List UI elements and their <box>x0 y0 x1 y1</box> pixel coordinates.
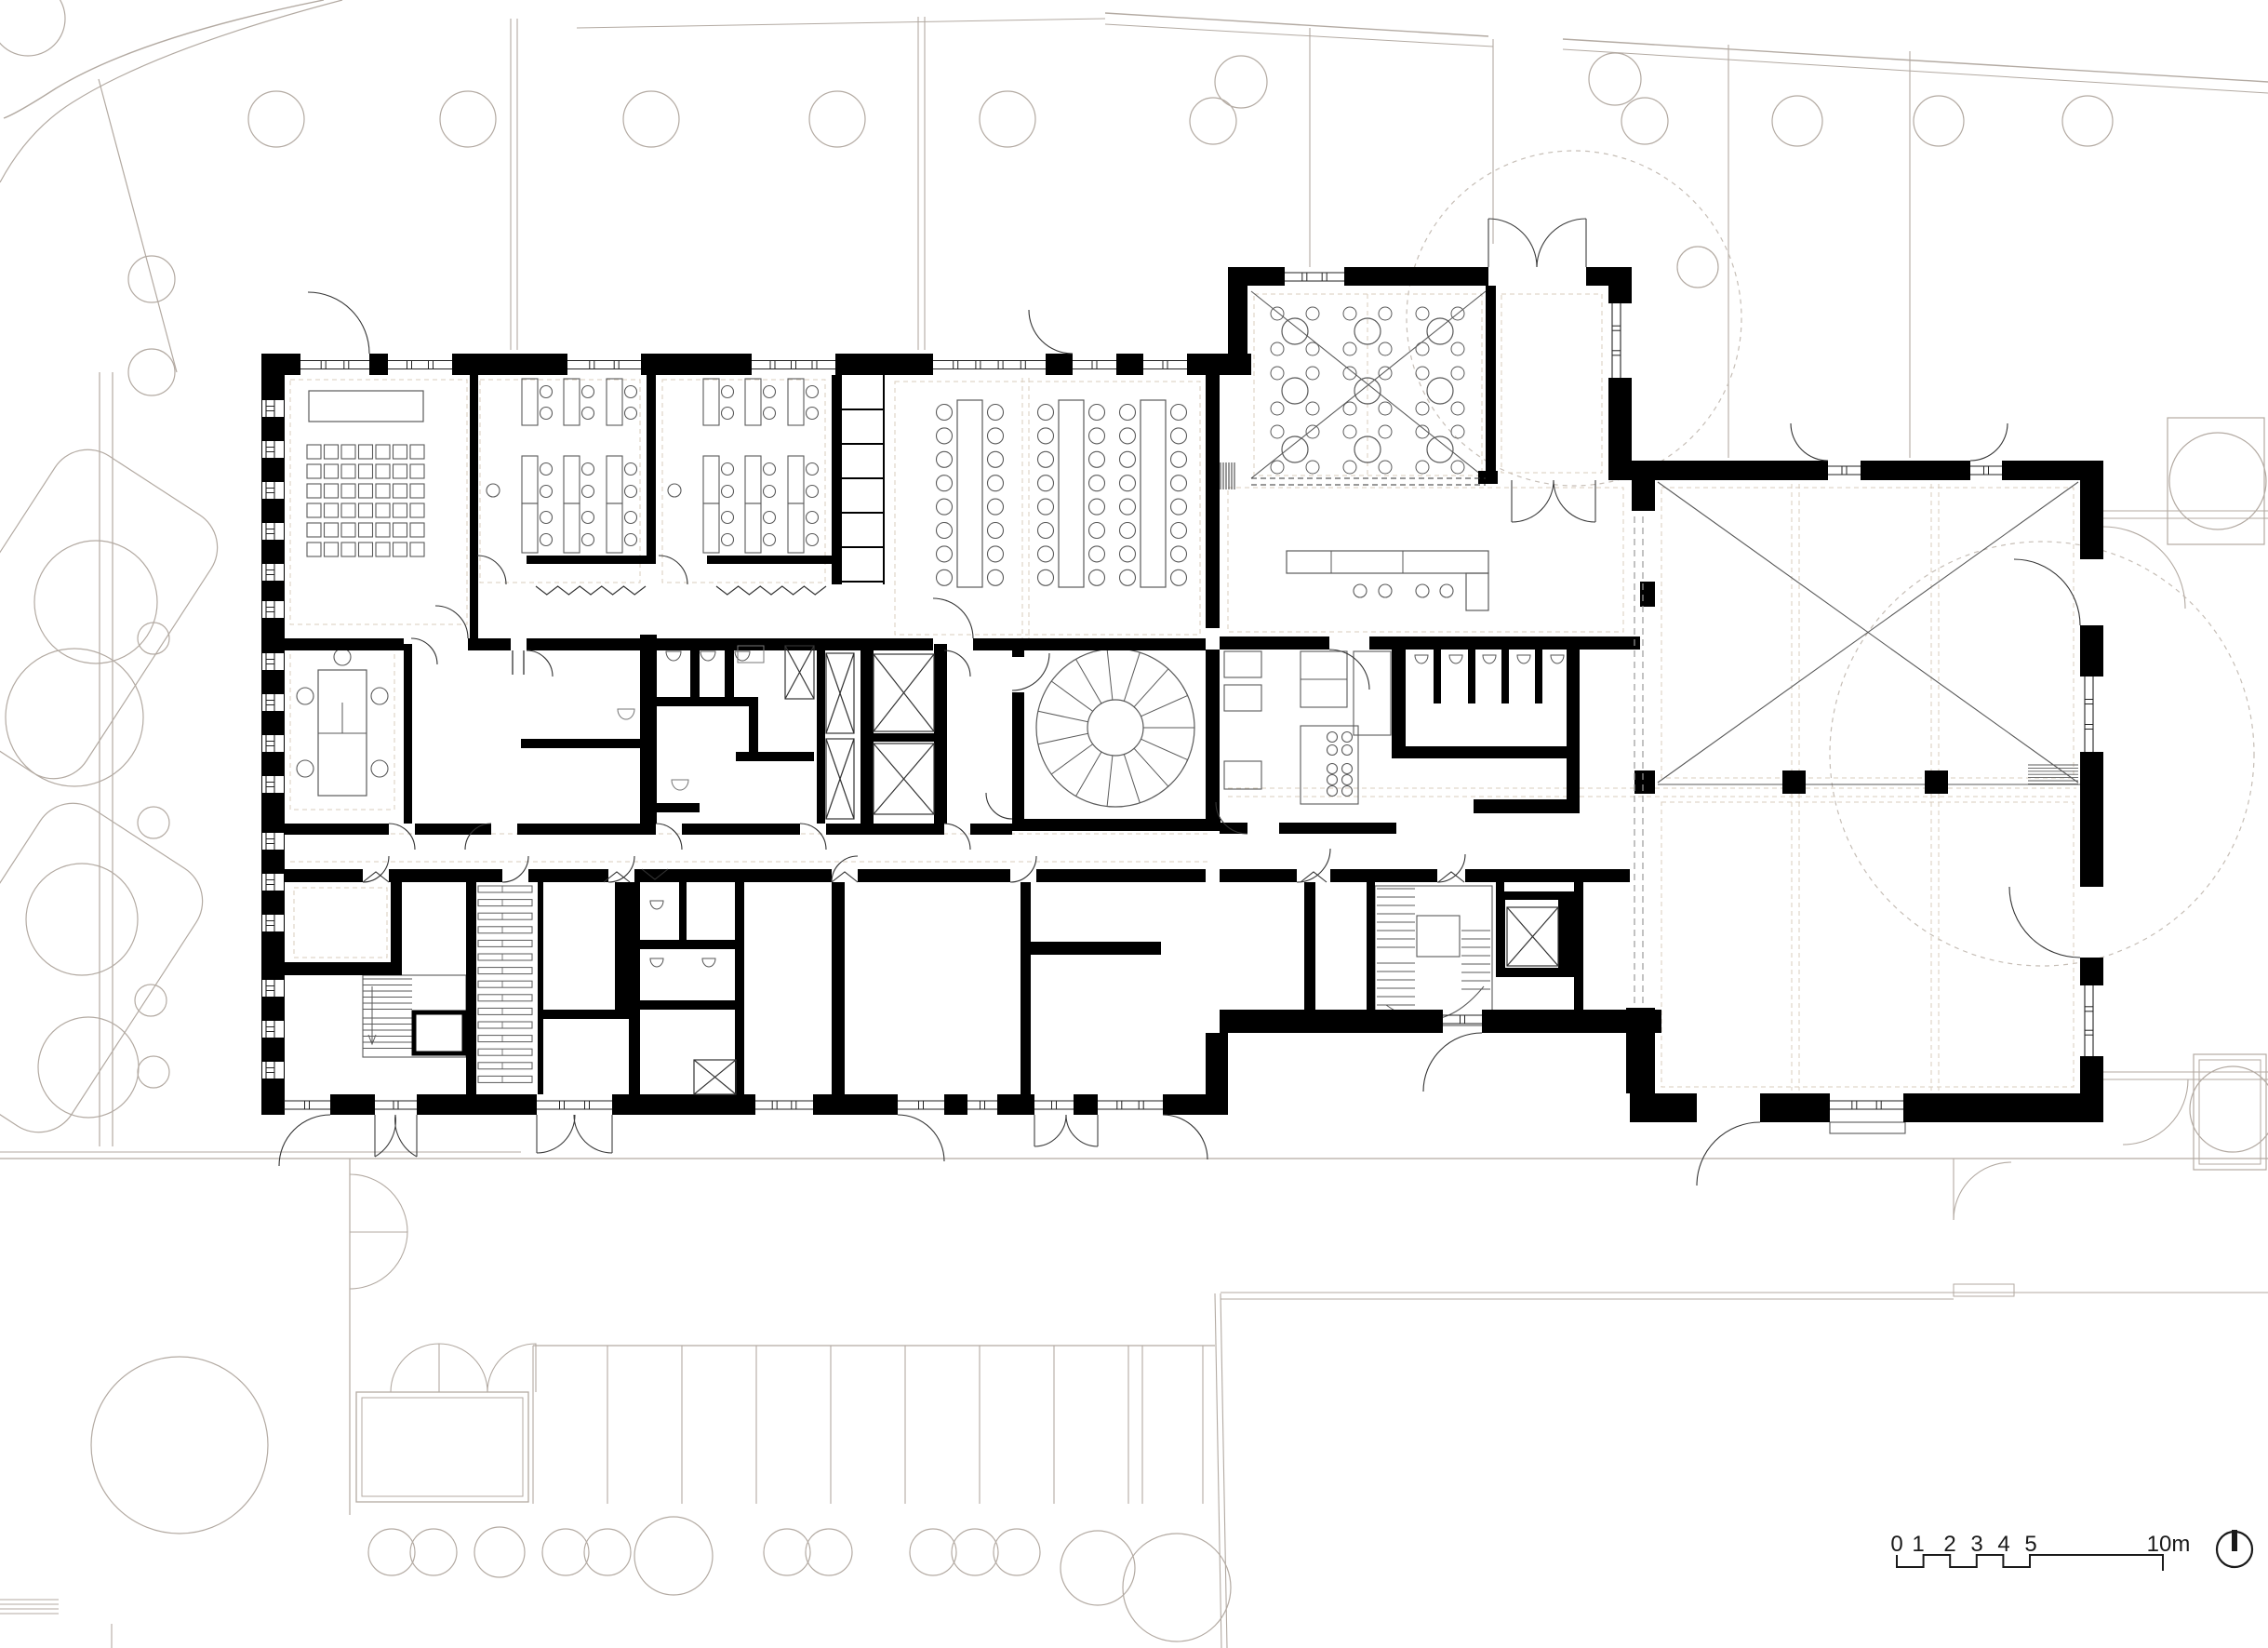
svg-text:4: 4 <box>1997 1532 2009 1557</box>
svg-text:10m: 10m <box>2147 1532 2191 1557</box>
svg-text:3: 3 <box>1970 1532 1982 1557</box>
svg-text:0: 0 <box>1890 1532 1902 1557</box>
svg-text:2: 2 <box>1943 1532 1955 1557</box>
svg-text:1: 1 <box>1912 1532 1924 1557</box>
svg-text:5: 5 <box>2024 1532 2036 1557</box>
